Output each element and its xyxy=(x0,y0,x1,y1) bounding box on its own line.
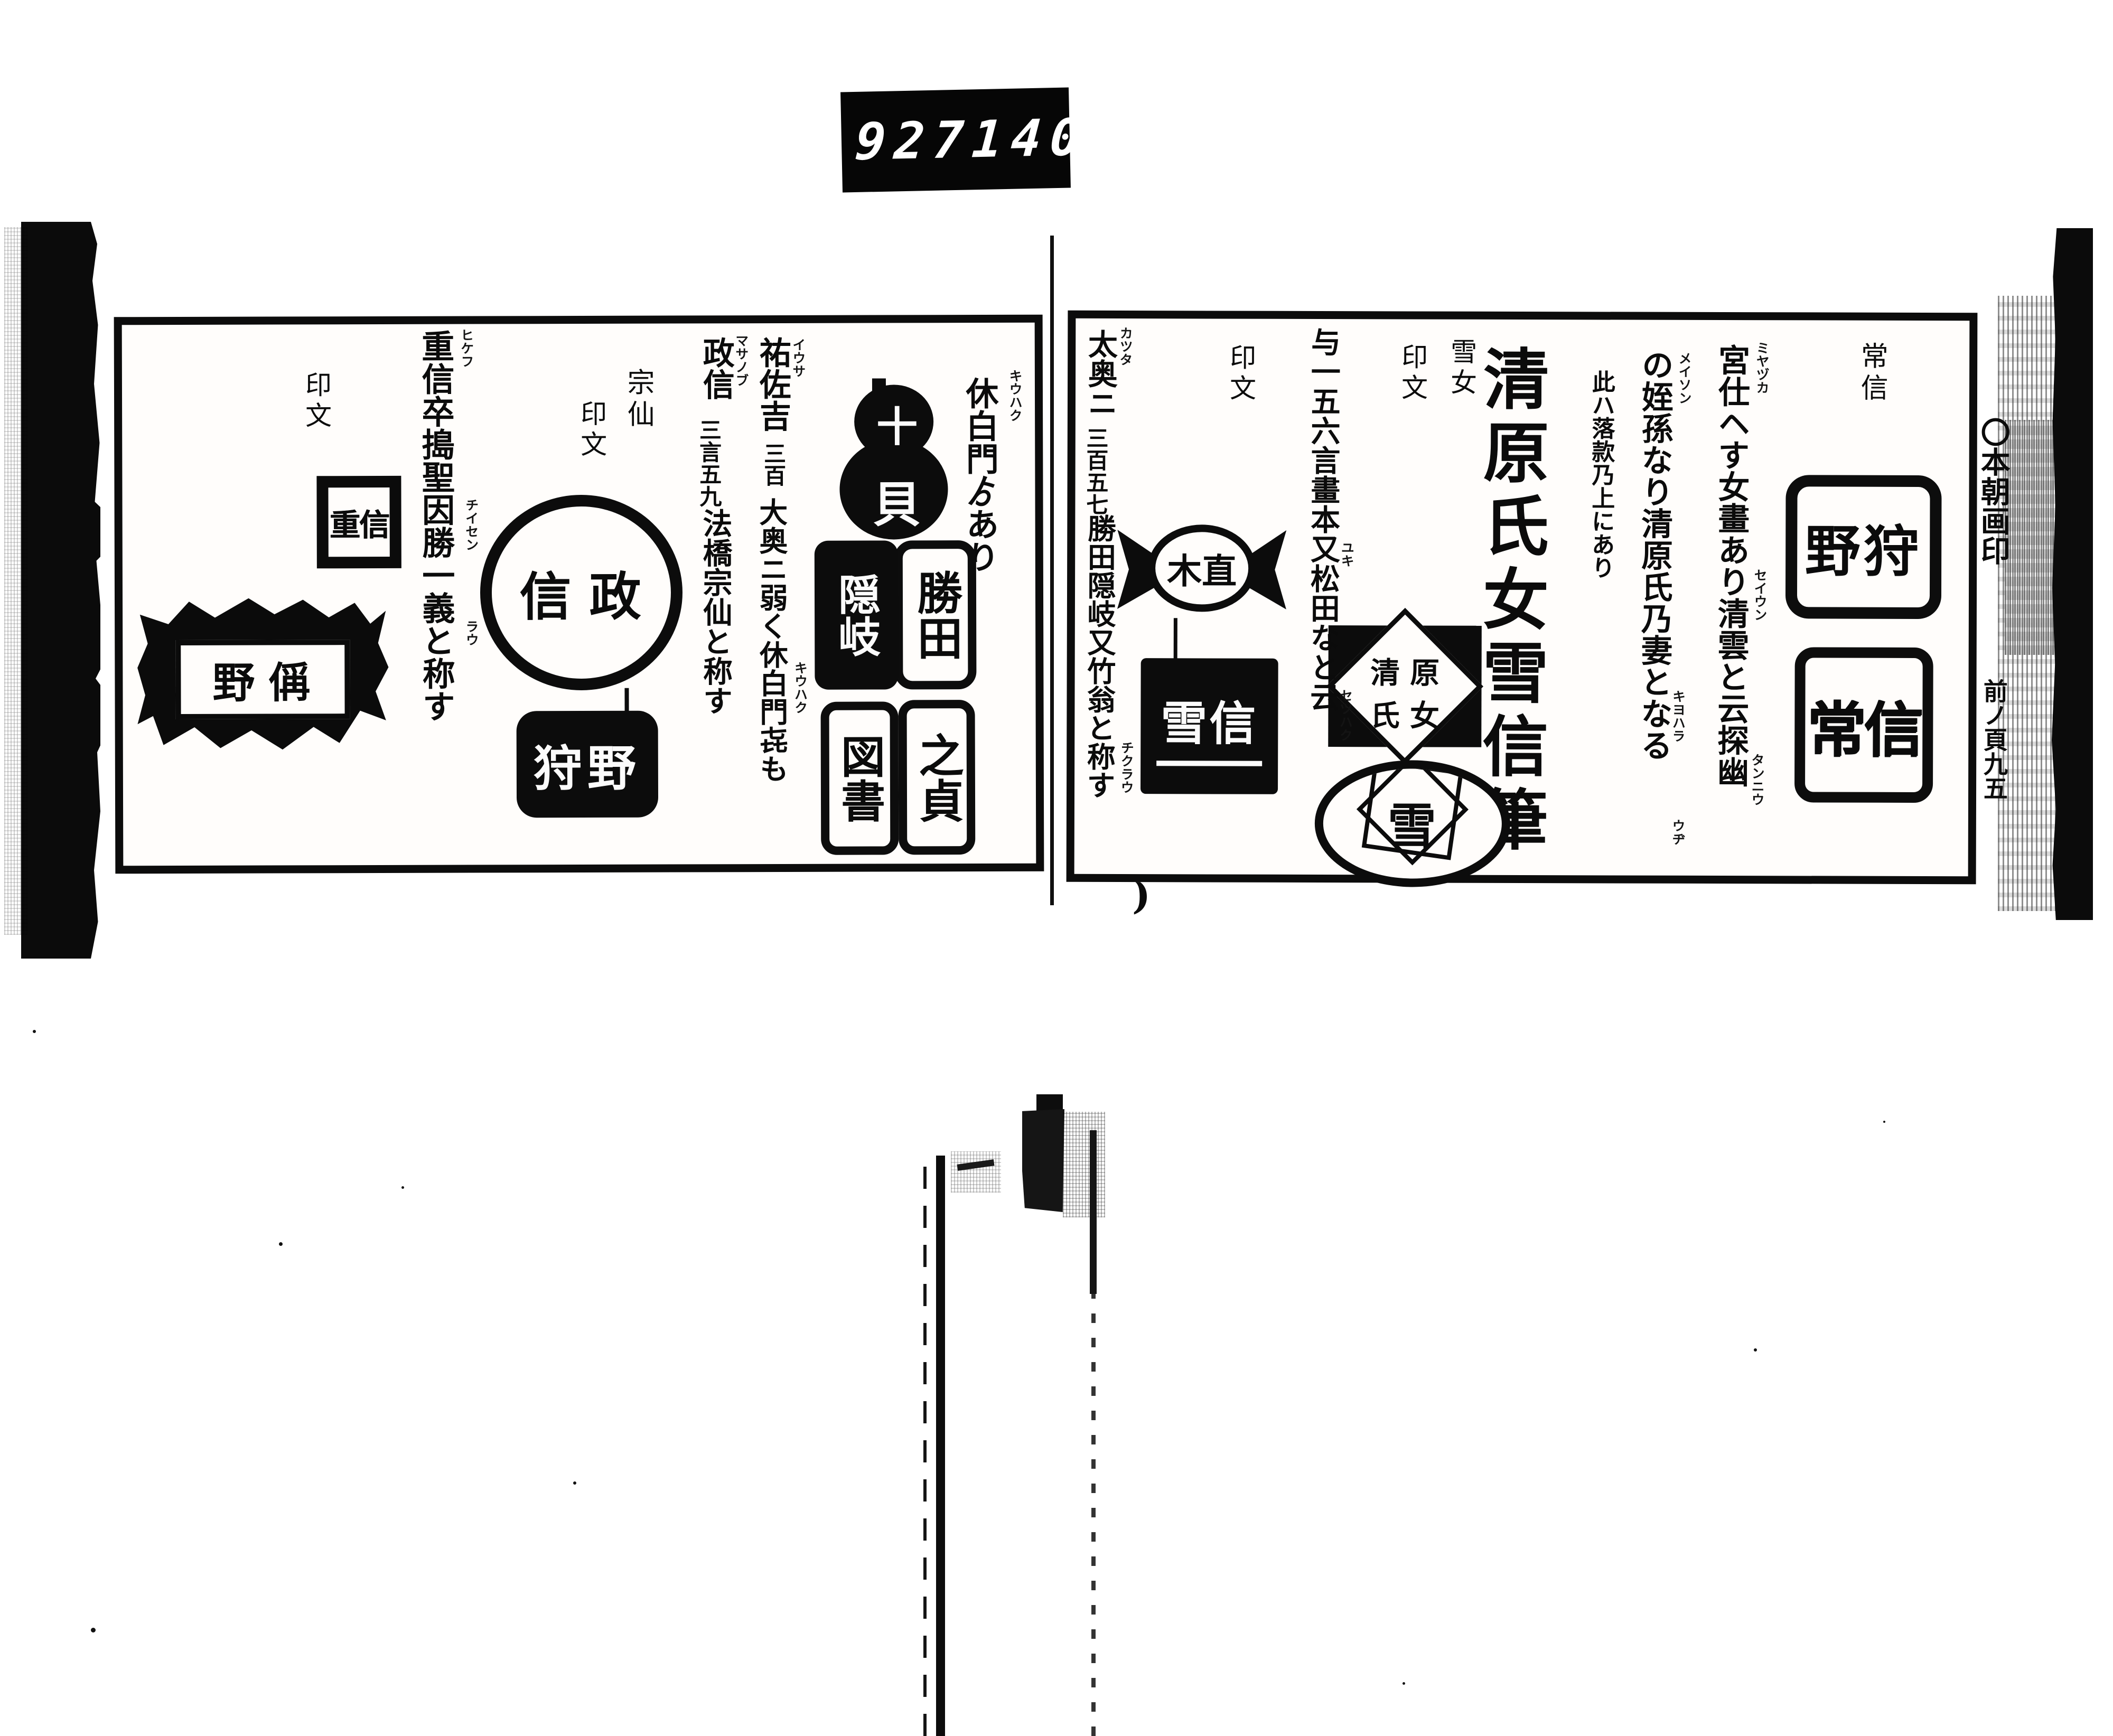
text-column-teisson: の姪孫なり清原氏乃妻となる xyxy=(1637,349,1671,856)
dust-speck xyxy=(1883,1121,1885,1123)
seal-black-square: 雪信 xyxy=(1140,658,1278,794)
dust-speck xyxy=(1403,1682,1405,1685)
seal-char: 隠 xyxy=(831,573,881,615)
left-page: 休白門ゟあり キウハク 十 貝 勝田 隠岐 之貞 xyxy=(114,315,1044,874)
microfilm-scan-page: 927 140. ) 〇本朝画印 前ノ頁九五 常信 野狩 常信 宮仕ヘす女畫あり… xyxy=(0,0,2113,1736)
seal-char: 野 xyxy=(212,658,268,708)
text-column-a: 大奥ニ弱く休白門㐂も xyxy=(756,498,787,825)
seal-char: 書 xyxy=(834,778,886,822)
seal-char: 之 xyxy=(910,732,964,777)
text-column-b-num: 三言五九 xyxy=(696,418,722,484)
seal-char: 十 xyxy=(876,394,918,453)
furigana: ラウ xyxy=(465,620,478,646)
header-inmon-1: 印文 xyxy=(578,400,605,461)
seal-nobumasa-circle: 信政 xyxy=(480,494,683,690)
right-binding-shadow xyxy=(2052,228,2093,920)
seal-char: 清 xyxy=(1370,649,1400,692)
film-scratch-right-solid xyxy=(1090,1130,1097,1294)
furigana: ユキ xyxy=(1340,541,1353,567)
counter-reel-number: 927 xyxy=(853,110,974,172)
text-column-katsuta-num: 三百五七 xyxy=(1083,427,1109,490)
right-page: 常信 野狩 常信 宮仕ヘす女畫あり清雲と云探幽 ミヤヅカ セイウン タンニウ の… xyxy=(1067,311,1978,885)
seal-char: 重 xyxy=(330,507,359,543)
furigana: キウハク xyxy=(793,661,807,714)
text-column-miyazukae: 宮仕ヘす女畫あり清雲と云探幽 xyxy=(1714,344,1748,830)
seal-char: 貞 xyxy=(911,777,964,823)
seal-sadayoshi: 之貞 xyxy=(899,700,976,855)
furigana: キウハク xyxy=(1008,369,1022,422)
furigana: メイソン xyxy=(1678,352,1691,405)
seal-char: 氏 xyxy=(1370,692,1400,735)
furigana: ウヂ xyxy=(1671,819,1685,846)
seal-char: 狩 xyxy=(534,739,587,796)
text-column-katsuta: 勝田隠岐又竹翁と称す xyxy=(1084,514,1115,852)
film-scratch-right-dotted xyxy=(1091,1294,1096,1736)
seal-char: 原 xyxy=(1410,649,1439,692)
seal-katsuta: 勝田 xyxy=(894,540,977,689)
seal-tsunenobu-char-1: 常 xyxy=(1807,695,1864,764)
seal-diamond-chars: 清 原 氏 女 xyxy=(1365,649,1444,723)
furigana: チイセン xyxy=(465,499,478,551)
seal-white-bar xyxy=(1156,761,1262,766)
text-column-a-num: 三百 xyxy=(760,442,786,486)
text-column-katsuta-pre: 太奥ニ xyxy=(1085,329,1116,418)
seal-yuki-circle: 雪 xyxy=(1315,760,1511,887)
left-binding-shadow xyxy=(21,222,100,959)
furigana: キヨハラ xyxy=(1671,690,1685,743)
dust-speck xyxy=(1754,1348,1757,1352)
dust-speck xyxy=(401,1186,404,1189)
frame-counter-display: 927 140. xyxy=(840,87,1071,192)
seal-kano-char-2: 狩 xyxy=(1864,519,1922,584)
seal-char: 田 xyxy=(909,615,962,660)
film-blot-speckled xyxy=(1063,1112,1105,1217)
text-column-yoichi: 与一五六言畫本又松田なと云 xyxy=(1307,327,1339,860)
seal-char: 直 xyxy=(1202,550,1237,592)
counter-frame-number: 140. xyxy=(970,107,1130,169)
dust-speck xyxy=(279,1242,283,1246)
film-scratch-bar xyxy=(936,1156,945,1736)
header-inmon-2: 印文 xyxy=(1227,344,1255,405)
furigana: カツタ xyxy=(1119,326,1132,366)
seal-char: 勝 xyxy=(909,569,962,615)
seal-connector-line xyxy=(624,688,629,711)
seal-char: 信 xyxy=(1209,696,1258,750)
text-column-shigenobu: 重信卒搗聖因勝一義と称す xyxy=(418,330,453,837)
seal-char: 岐 xyxy=(831,615,881,658)
furigana: セイウン xyxy=(1753,568,1766,621)
seal-ornate-inner: 野偁 xyxy=(175,640,350,719)
seal-char: 図 xyxy=(834,734,886,778)
furigana: マサノブ xyxy=(735,334,748,387)
furigana: ヒケフ xyxy=(460,329,473,368)
seal-char: 信 xyxy=(519,567,589,627)
seal-kano-black: 狩野 xyxy=(517,711,659,818)
dust-speck xyxy=(33,1030,36,1033)
left-edge-noise xyxy=(4,227,27,935)
page-gutter-line xyxy=(1050,236,1054,905)
margin-note-bottom: 前ノ頁九五 xyxy=(1981,679,2006,800)
seal-char: 雪 xyxy=(1161,696,1209,750)
seal-char: 貝 xyxy=(872,465,921,536)
text-column-a-name: 祐佐吉 xyxy=(756,336,789,431)
seal-tosho: 図書 xyxy=(821,701,899,855)
seal-char: 政 xyxy=(589,567,659,627)
dust-speck xyxy=(573,1481,576,1485)
header-sosen: 宗仙 xyxy=(624,368,652,431)
seal-tsunenobu-char-2: 信 xyxy=(1864,696,1921,765)
text-column-note-small: 此ハ落款乃上にあり xyxy=(1588,370,1613,579)
seal-char: 偁 xyxy=(268,658,324,707)
seal-char: 木 xyxy=(1167,550,1202,592)
furigana: チクラウ xyxy=(1120,741,1133,794)
seal-kano: 野狩 xyxy=(1785,475,1942,619)
film-scratch-line-thin xyxy=(923,1159,927,1736)
seal-winged-body: 木直 xyxy=(1148,524,1256,612)
seal-connector-line xyxy=(1174,618,1177,659)
seal-diamond-kiyohara: 清 原 氏 女 xyxy=(1315,602,1495,771)
header-inmon-2: 印文 xyxy=(303,371,330,432)
seal-kano-char-1: 野 xyxy=(1805,518,1864,584)
furigana: セツハク xyxy=(1339,689,1352,742)
furigana: ミヤヅカ xyxy=(1755,341,1769,394)
text-column-b-name: 政信 xyxy=(699,336,733,400)
seal-oki-black: 隠岐 xyxy=(815,540,899,689)
right-page-artist-header: 常信 xyxy=(1857,342,1886,405)
seal-square-geometric: 重信 xyxy=(316,476,401,568)
header-yukijo: 雪女 xyxy=(1448,338,1475,399)
seal-tsunenobu: 常信 xyxy=(1794,647,1933,803)
seal-char: 信 xyxy=(359,506,389,542)
text-column-b: 法橋宗仙と称す xyxy=(700,508,732,825)
seal-winged-oval: 木直 xyxy=(1117,522,1286,620)
seal-gourd: 十 貝 xyxy=(839,378,948,540)
film-smudge xyxy=(951,1151,1001,1193)
furigana: タンニウ xyxy=(1751,753,1764,806)
margin-note-top: 〇本朝画印 xyxy=(1978,417,2008,565)
furigana: イウサ xyxy=(792,338,805,378)
header-inmon-1: 印文 xyxy=(1399,343,1426,404)
dust-speck xyxy=(91,1628,96,1632)
seal-char: 雪 xyxy=(1388,787,1436,857)
seal-char: 野 xyxy=(587,739,641,796)
film-blot-dark xyxy=(1022,1109,1064,1212)
seal-char: 女 xyxy=(1410,692,1439,735)
